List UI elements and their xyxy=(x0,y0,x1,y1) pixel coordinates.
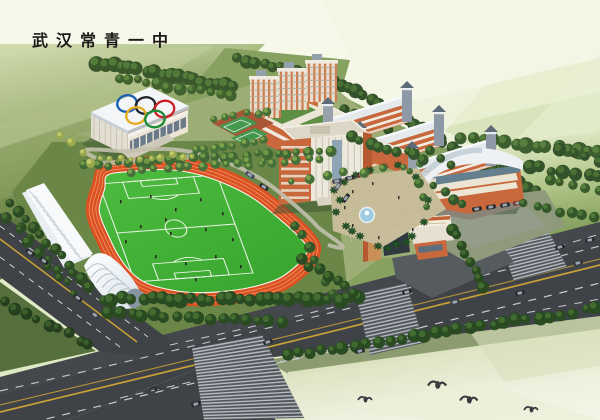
svg-text:武汉常青一中: 武汉常青一中 xyxy=(32,31,176,50)
